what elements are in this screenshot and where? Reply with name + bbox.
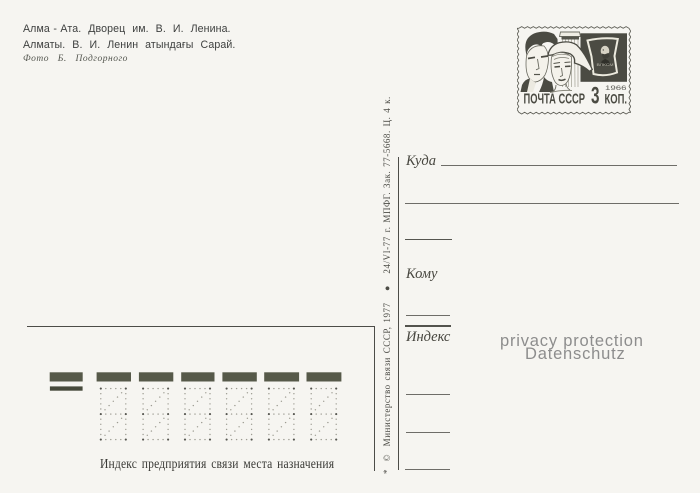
svg-text:КОП.: КОП. [605,91,628,107]
svg-text:3: 3 [591,83,600,110]
svg-text:ВЛКСМ: ВЛКСМ [597,63,614,67]
svg-text:ПОЧТА СССР: ПОЧТА СССР [524,91,586,108]
